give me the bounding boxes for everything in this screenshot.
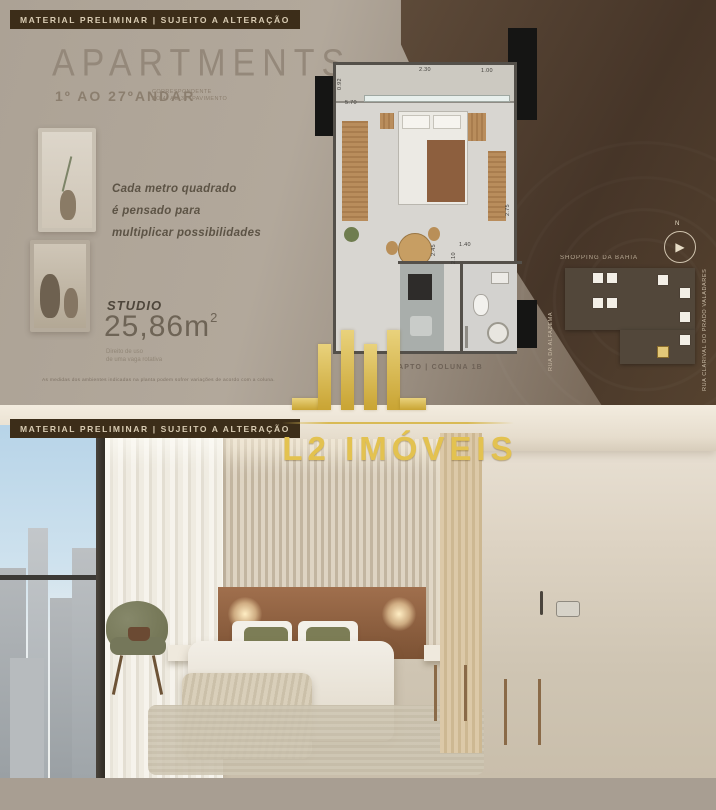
compass-north-label: N (675, 221, 679, 227)
wood-panel (440, 433, 482, 753)
plant-plan (344, 227, 359, 242)
media-rack (488, 151, 506, 221)
bed (398, 111, 468, 205)
nightstand-plan (380, 113, 394, 129)
unit-marker (593, 298, 603, 308)
pot (556, 601, 580, 617)
dim-label: 2.30 (419, 67, 431, 73)
logo-bar (318, 344, 331, 410)
flyer: APARTMENTS 1º AO 27ºANDAR CORRESPONDENTE… (0, 0, 716, 810)
unit-marker (680, 312, 690, 322)
sconce-light (382, 597, 416, 631)
parking-note: Direito de uso de uma vaga rotativa (106, 348, 162, 364)
dim-label: 2.75 (505, 204, 511, 216)
chair-plan (428, 227, 440, 241)
dim-label: 0.92 (337, 78, 343, 90)
stove (408, 274, 432, 300)
floorplan: 0.92 5.70 2.30 1.00 2.75 2.45 2.10 1.40 (315, 28, 537, 362)
logo-bar (292, 398, 318, 410)
balcony-rail (0, 575, 102, 580)
chair-plan (386, 241, 398, 255)
tagline: Cada metro quadrado é pensado para multi… (112, 178, 261, 244)
handbag (128, 627, 150, 641)
window-city-view (0, 425, 102, 778)
street-label-right: RUA CLARIVAL DO PRADO VALADARES (702, 269, 708, 391)
logo-bar (387, 330, 400, 410)
unit-area: 25,86m2 (104, 310, 218, 344)
logo-bar (400, 398, 426, 410)
window-frame (96, 425, 105, 778)
bath-sink (491, 272, 509, 284)
map-poi-label: SHOPPING DA BAHIA (560, 255, 638, 261)
unit-marker (593, 273, 603, 283)
logo-wordmark: L2 IMÓVEIS (240, 430, 560, 468)
nightstand-plan (468, 113, 486, 141)
compass-icon: ▶ (664, 231, 696, 263)
dim-label: 2.45 (431, 244, 437, 256)
balcony-glass-rail (364, 95, 510, 102)
faucet (540, 591, 543, 615)
building-footprint (565, 268, 695, 330)
wardrobe (342, 121, 368, 221)
unit-marker-highlighted (658, 347, 668, 357)
dim-label: 5.70 (345, 100, 357, 106)
unit-marker (607, 298, 617, 308)
decor-photo-vases (30, 240, 90, 332)
unit-marker (680, 335, 690, 345)
unit-marker (680, 288, 690, 298)
dim-label: 1.00 (481, 68, 493, 74)
page-title: APARTMENTS (52, 42, 351, 86)
unit-marker (607, 273, 617, 283)
floorplan-room (333, 62, 517, 354)
blanket-plan (427, 140, 465, 202)
floors-note: CORRESPONDENTE AO 4º AO 30º PAVIMENTO (152, 89, 227, 103)
pillow-plan (433, 115, 461, 129)
l2-imoveis-logo: L2 IMÓVEIS (240, 326, 560, 476)
dim-label: 2.10 (451, 252, 457, 264)
logo-bar (341, 330, 354, 410)
unit-marker (658, 275, 668, 285)
pillow-plan (402, 115, 430, 129)
decor-photo-plant (38, 128, 96, 232)
logo-bar (364, 344, 377, 410)
structural-column (315, 76, 335, 136)
toilet (473, 294, 489, 316)
dim-label: 1.40 (459, 242, 471, 248)
location-keyplan: N ▶ SHOPPING DA BAHIA RUA DA ALFAZEMA RU… (548, 225, 716, 393)
preliminary-badge-top: MATERIAL PRELIMINAR | SUJEITO A ALTERAÇÃ… (10, 10, 300, 29)
logo-rule (282, 422, 514, 424)
